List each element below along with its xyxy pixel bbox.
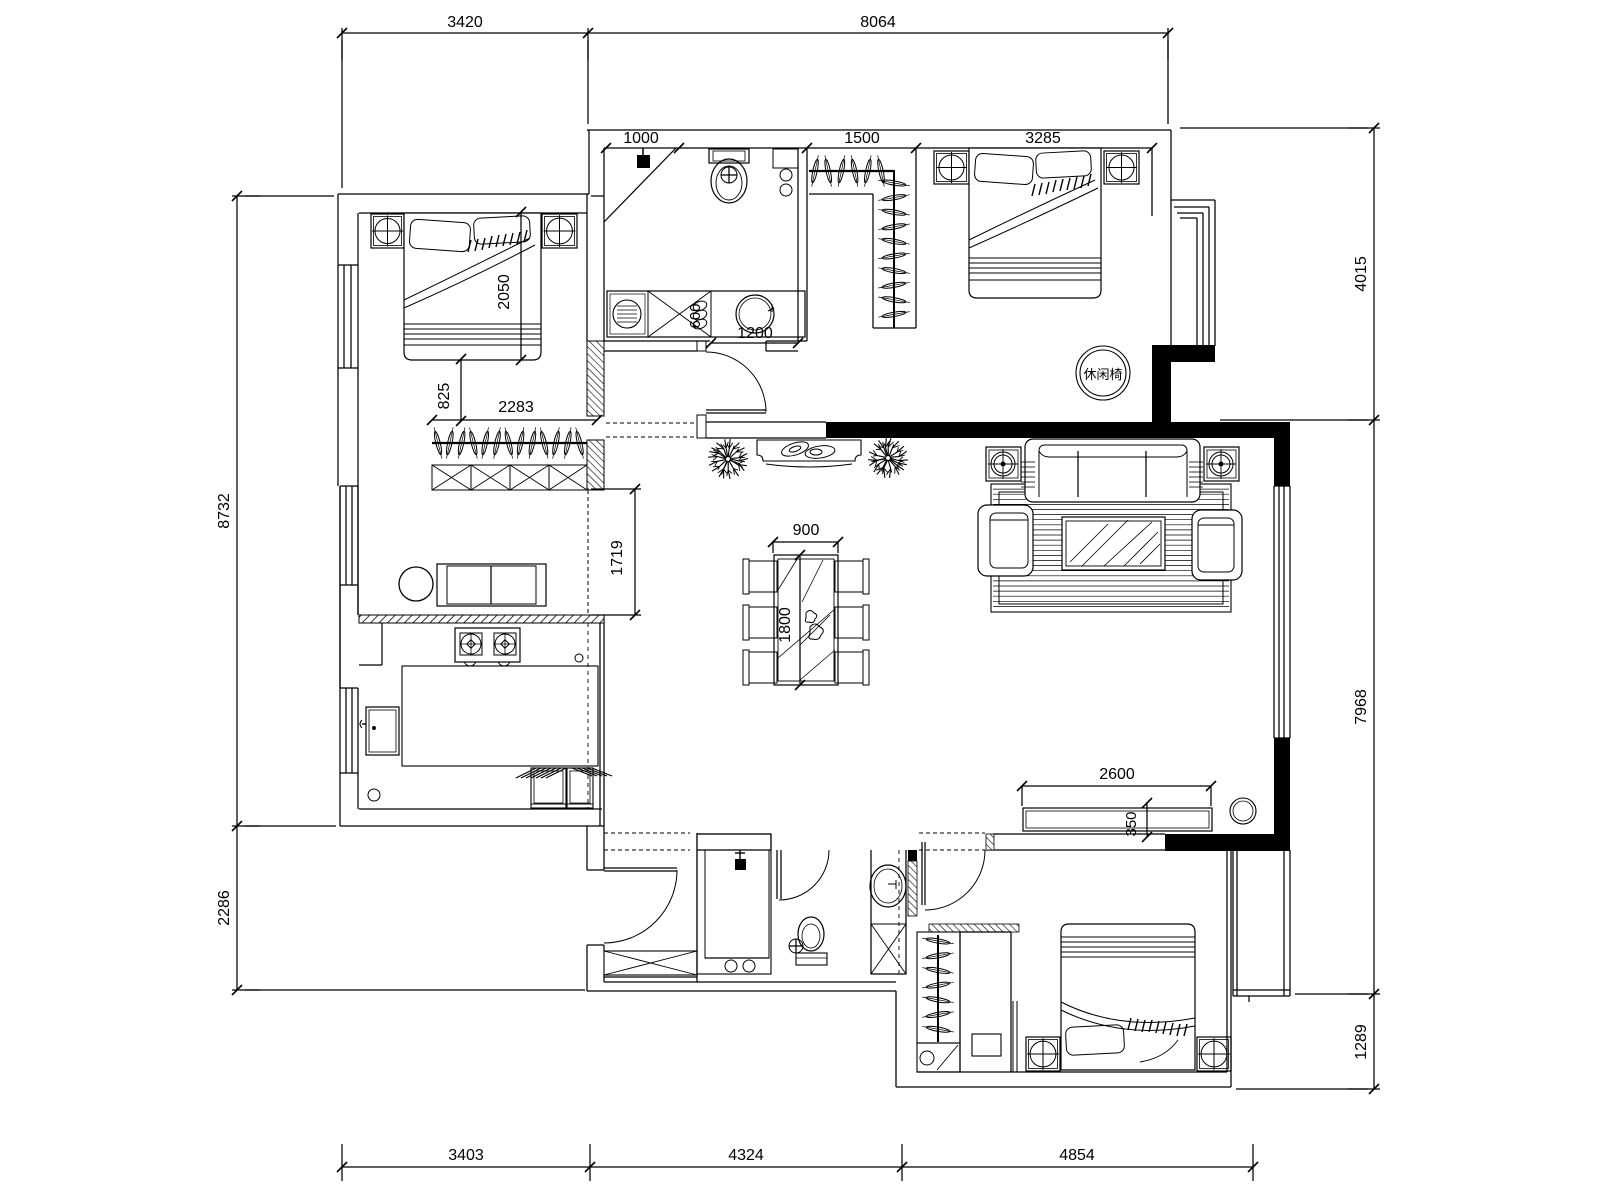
svg-text:2283: 2283 <box>498 399 534 416</box>
svg-text:8064: 8064 <box>860 14 896 31</box>
svg-text:1500: 1500 <box>844 130 880 147</box>
svg-text:2286: 2286 <box>216 890 233 926</box>
svg-text:900: 900 <box>793 522 820 539</box>
svg-text:1289: 1289 <box>1353 1024 1370 1060</box>
svg-text:3420: 3420 <box>447 14 483 31</box>
svg-text:1000: 1000 <box>623 130 659 147</box>
svg-text:350: 350 <box>1123 811 1140 836</box>
svg-text:3403: 3403 <box>448 1147 484 1164</box>
svg-text:4854: 4854 <box>1059 1147 1095 1164</box>
svg-text:1719: 1719 <box>609 540 626 576</box>
svg-text:600: 600 <box>687 303 704 328</box>
svg-text:825: 825 <box>436 383 453 410</box>
svg-text:1800: 1800 <box>777 607 794 643</box>
svg-text:1200: 1200 <box>737 325 773 342</box>
svg-text:8732: 8732 <box>216 493 233 529</box>
svg-text:4324: 4324 <box>728 1147 764 1164</box>
svg-text:2600: 2600 <box>1099 766 1135 783</box>
svg-text:7968: 7968 <box>1353 689 1370 725</box>
svg-text:休闲椅: 休闲椅 <box>1083 367 1122 382</box>
svg-text:3285: 3285 <box>1025 130 1061 147</box>
svg-text:4015: 4015 <box>1353 256 1370 292</box>
svg-text:2050: 2050 <box>496 274 513 310</box>
